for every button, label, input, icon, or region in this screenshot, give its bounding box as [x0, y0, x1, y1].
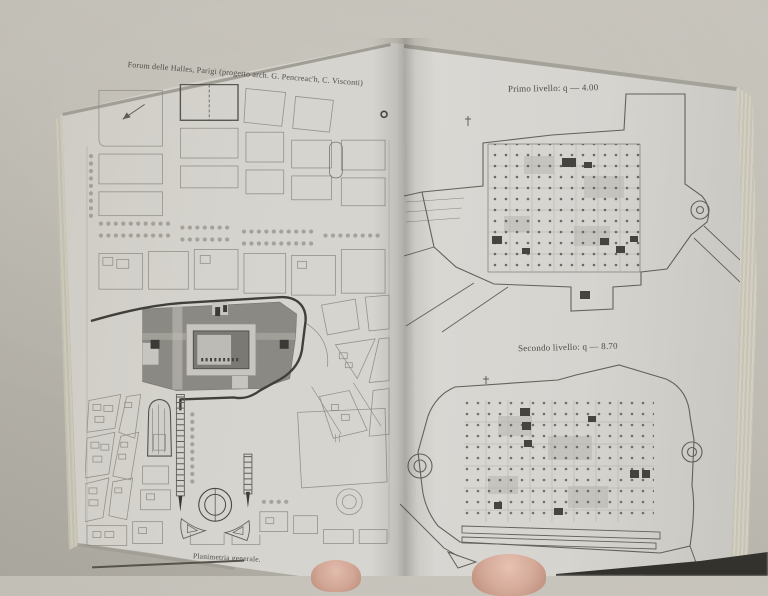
- floor-plan-level1: [404, 86, 740, 334]
- open-book: Forum delle Halles, Parigi (progetto arc…: [0, 0, 768, 576]
- left-fingertip: [311, 560, 361, 592]
- fountain: [181, 488, 250, 541]
- right-fingertip: [472, 554, 546, 596]
- map-corner-mark: [381, 111, 387, 117]
- church-outline: [148, 399, 172, 456]
- site-plan-drawing: [85, 84, 393, 552]
- floor-plan-level2: [398, 356, 750, 574]
- site-plan-highlight-block: [180, 85, 238, 121]
- north-arrow-icon: [123, 104, 145, 119]
- forum-des-halles-building: [143, 302, 297, 390]
